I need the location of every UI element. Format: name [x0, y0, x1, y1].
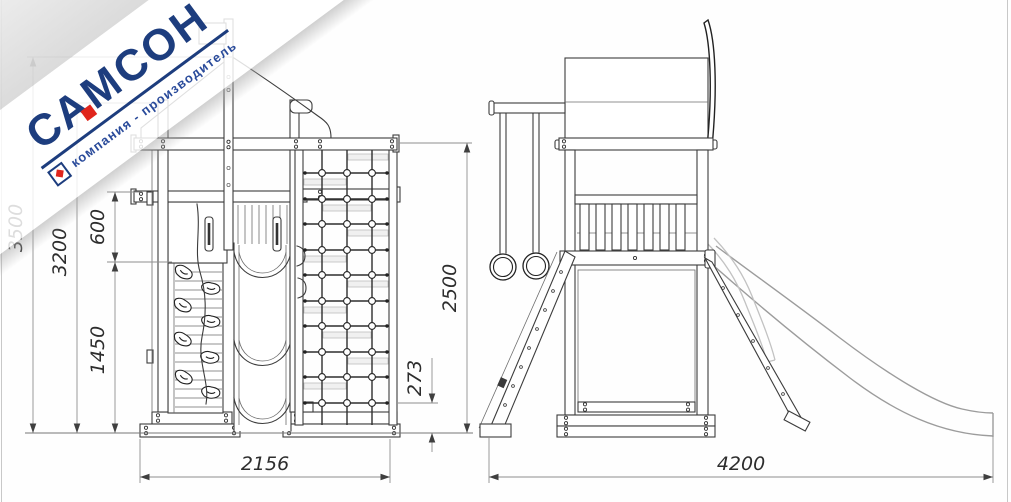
a-frame-ladder — [479, 251, 575, 437]
support-brace — [705, 258, 810, 431]
side-roof — [565, 20, 715, 147]
dim-label-overall-length: 4200 — [717, 453, 765, 475]
dim-label-base-width: 2156 — [241, 453, 289, 475]
brand-mark-icon — [47, 161, 72, 186]
side-railing-slats — [580, 204, 685, 250]
side-tower — [555, 138, 717, 437]
gym-rings — [490, 253, 549, 280]
blueprint-page: 3500 3200 600 1450 2500 273 2156 4200 СА… — [0, 0, 1011, 502]
dim-label-net-ground-gap: 273 — [404, 360, 426, 396]
dim-label-net-height: 2500 — [439, 264, 461, 312]
tube-slide-exit — [706, 238, 775, 362]
